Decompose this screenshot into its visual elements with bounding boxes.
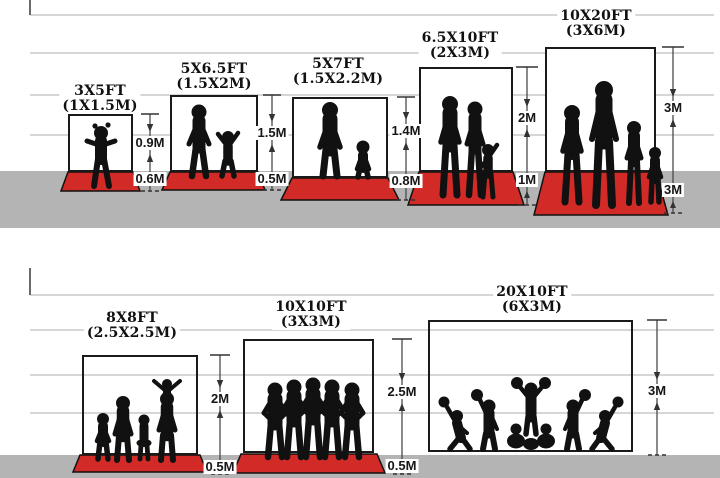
panel-title-10x10ft: 10X10FT (3X3M) xyxy=(272,300,350,330)
size-m-label: (3X3M) xyxy=(275,315,347,330)
height-label-20x10ft: 3M xyxy=(646,384,668,398)
height-label-5x6-5ft: 1.5M xyxy=(256,126,289,140)
size-m-label: (1.5X2.2M) xyxy=(293,72,383,87)
height-label-8x8ft: 2M xyxy=(209,392,231,406)
depth-label-8x8ft: 0.5M xyxy=(204,460,237,474)
size-m-label: (2X3M) xyxy=(422,46,499,61)
size-ft-label: 5X6.5FT xyxy=(176,62,251,77)
panel-title-20x10ft: 20X10FT (6X3M) xyxy=(493,285,571,315)
size-m-label: (1.5X2M) xyxy=(176,77,251,92)
size-ft-label: 3X5FT xyxy=(62,84,137,99)
panel-title-8x8ft: 8X8FT (2.5X2.5M) xyxy=(84,311,180,341)
panel-title-3x5ft: 3X5FT (1X1.5M) xyxy=(59,84,140,114)
size-ft-label: 5X7FT xyxy=(293,57,383,72)
size-m-label: (1X1.5M) xyxy=(62,99,137,114)
panel-title-5x7ft: 5X7FT (1.5X2.2M) xyxy=(290,57,386,87)
size-ft-label: 20X10FT xyxy=(496,285,568,300)
size-ft-label: 6.5X10FT xyxy=(422,31,499,46)
height-label-3x5ft: 0.9M xyxy=(134,136,167,150)
depth-label-10x20ft: 3M xyxy=(662,183,684,197)
dimension-annotation xyxy=(210,355,230,474)
dimension-annotation xyxy=(392,339,412,474)
size-ft-label: 10X20FT xyxy=(560,9,632,24)
height-label-6-5x10ft: 2M xyxy=(516,111,538,125)
depth-label-5x6-5ft: 0.5M xyxy=(256,172,289,186)
size-ft-label: 10X10FT xyxy=(275,300,347,315)
panel-title-6-5x10ft: 6.5X10FT (2X3M) xyxy=(419,31,502,61)
height-label-10x20ft: 3M xyxy=(662,101,684,115)
depth-label-6-5x10ft: 1M xyxy=(516,173,538,187)
size-m-label: (2.5X2.5M) xyxy=(87,326,177,341)
height-label-5x7ft: 1.4M xyxy=(390,124,423,138)
depth-label-10x10ft: 0.5M xyxy=(386,459,419,473)
depth-label-5x7ft: 0.8M xyxy=(390,174,423,188)
size-m-label: (3X6M) xyxy=(560,24,632,39)
size-m-label: (6X3M) xyxy=(496,300,568,315)
depth-label-3x5ft: 0.6M xyxy=(134,172,167,186)
panel-title-5x6-5ft: 5X6.5FT (1.5X2M) xyxy=(173,62,254,92)
size-ft-label: 8X8FT xyxy=(87,311,177,326)
panel-title-10x20ft: 10X20FT (3X6M) xyxy=(557,9,635,39)
height-label-10x10ft: 2.5M xyxy=(386,385,419,399)
size-comparison-diagram: 0.9M 0.6M 1.5M 0.5M 1.4M 0.8M 2M 1M 3M 3… xyxy=(0,0,720,478)
